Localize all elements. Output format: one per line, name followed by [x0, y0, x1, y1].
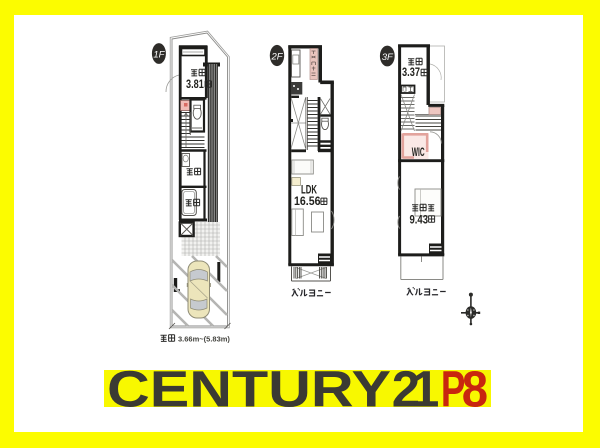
svg-text:8: 8	[462, 361, 488, 418]
svg-text:3F: 3F	[382, 52, 394, 63]
svg-text:3.66m~(5.83m): 3.66m~(5.83m)	[178, 335, 230, 344]
svg-text:16.56: 16.56	[294, 194, 321, 208]
svg-text:1F: 1F	[153, 50, 165, 61]
svg-text:1: 1	[411, 361, 439, 418]
svg-text:2F: 2F	[270, 52, 283, 63]
svg-text:3.37: 3.37	[402, 67, 420, 79]
svg-text:WIC: WIC	[412, 147, 425, 159]
svg-text:CENTURY: CENTURY	[107, 361, 391, 418]
svg-text:9.43: 9.43	[410, 214, 429, 226]
svg-text:3.81: 3.81	[186, 79, 204, 91]
